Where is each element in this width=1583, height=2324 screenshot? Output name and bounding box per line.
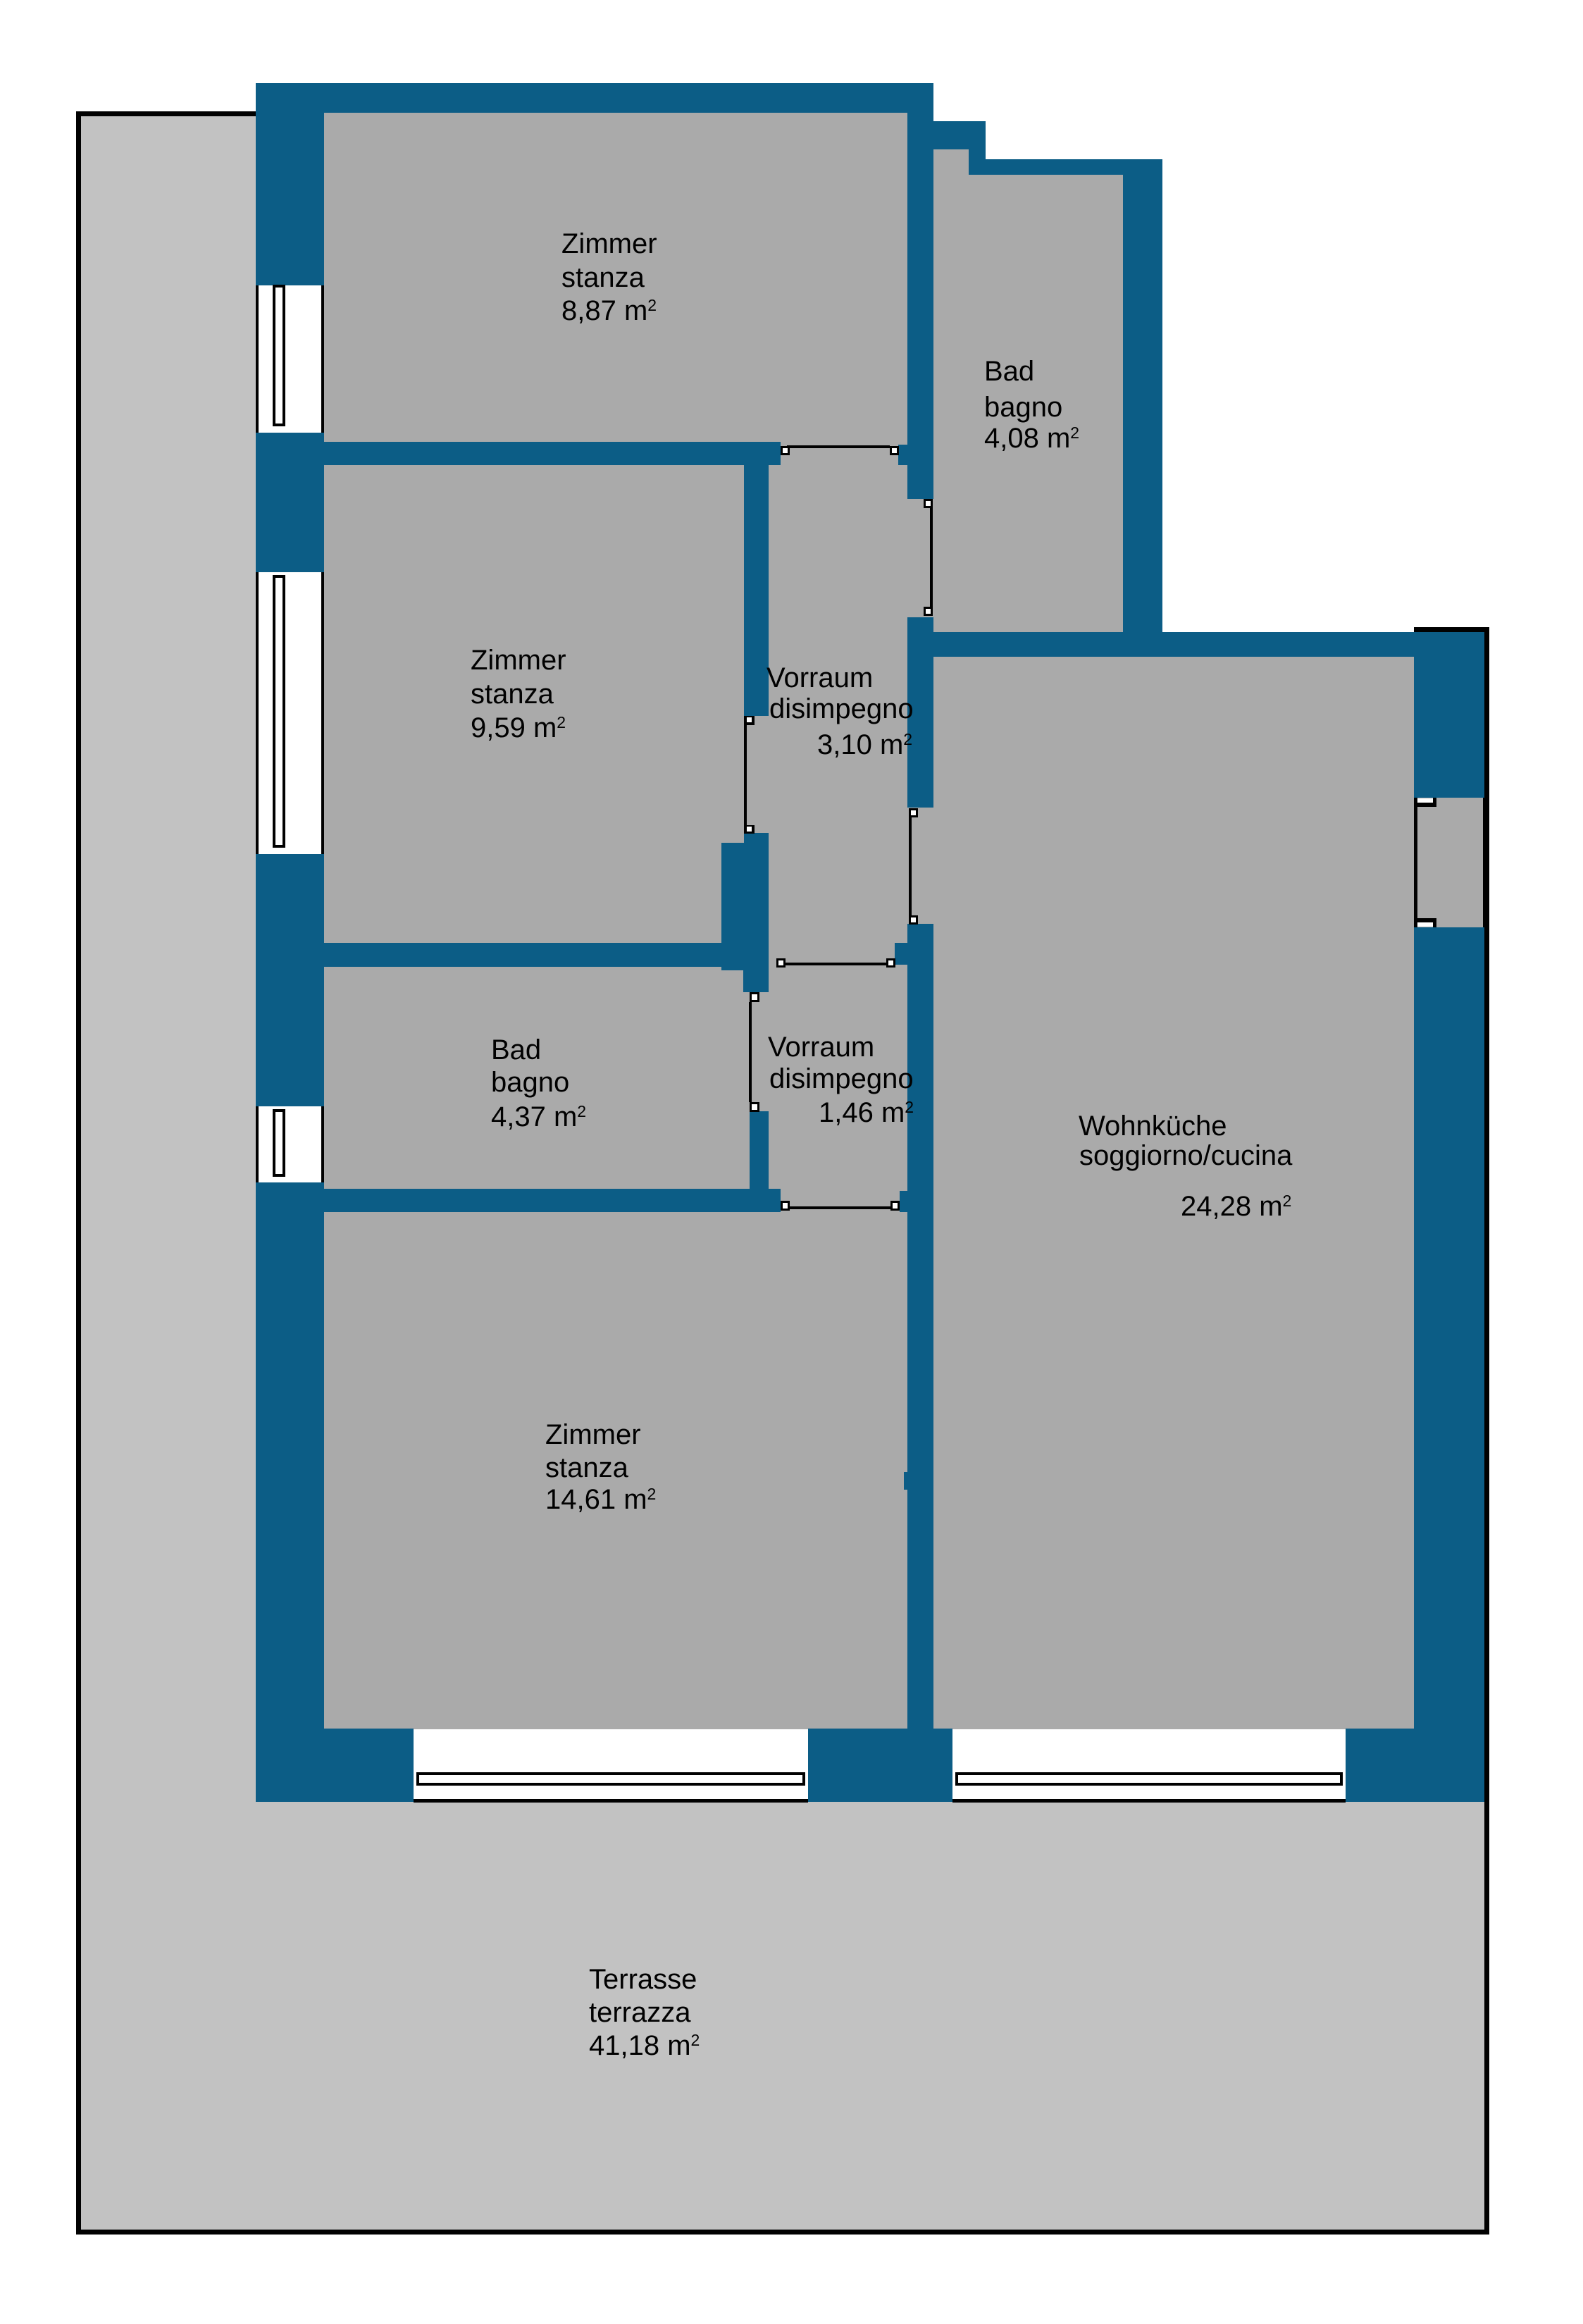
svg-text:Vorraum: Vorraum: [768, 1032, 874, 1063]
svg-text:stanza: stanza: [471, 679, 554, 710]
svg-text:Zimmer: Zimmer: [471, 645, 566, 676]
svg-text:Vorraum: Vorraum: [766, 662, 873, 693]
svg-text:24,28 m2: 24,28 m2: [1181, 1191, 1291, 1222]
svg-text:stanza: stanza: [561, 262, 645, 293]
svg-text:14,61 m2: 14,61 m2: [545, 1484, 656, 1515]
svg-text:Zimmer: Zimmer: [545, 1419, 641, 1450]
svg-text:Wohnküche: Wohnküche: [1079, 1111, 1227, 1142]
svg-text:9,59 m2: 9,59 m2: [471, 712, 566, 743]
svg-text:4,08 m2: 4,08 m2: [984, 423, 1079, 454]
svg-text:1,46 m2: 1,46 m2: [819, 1097, 914, 1128]
svg-text:4,37 m2: 4,37 m2: [491, 1101, 586, 1132]
svg-text:Terrasse: Terrasse: [589, 1964, 697, 1995]
svg-text:41,18 m2: 41,18 m2: [589, 2030, 700, 2061]
svg-text:stanza: stanza: [545, 1452, 629, 1483]
svg-text:Bad: Bad: [491, 1034, 541, 1065]
svg-text:3,10 m2: 3,10 m2: [817, 729, 912, 760]
svg-text:disimpegno: disimpegno: [769, 693, 914, 724]
svg-text:terrazza: terrazza: [589, 1997, 691, 2028]
svg-text:8,87 m2: 8,87 m2: [561, 295, 657, 326]
svg-text:disimpegno: disimpegno: [769, 1063, 914, 1094]
svg-text:Zimmer: Zimmer: [561, 228, 657, 259]
svg-text:soggiorno/cucina: soggiorno/cucina: [1079, 1140, 1293, 1171]
svg-text:bagno: bagno: [984, 392, 1062, 423]
svg-text:bagno: bagno: [491, 1067, 569, 1098]
svg-text:Bad: Bad: [984, 356, 1034, 387]
